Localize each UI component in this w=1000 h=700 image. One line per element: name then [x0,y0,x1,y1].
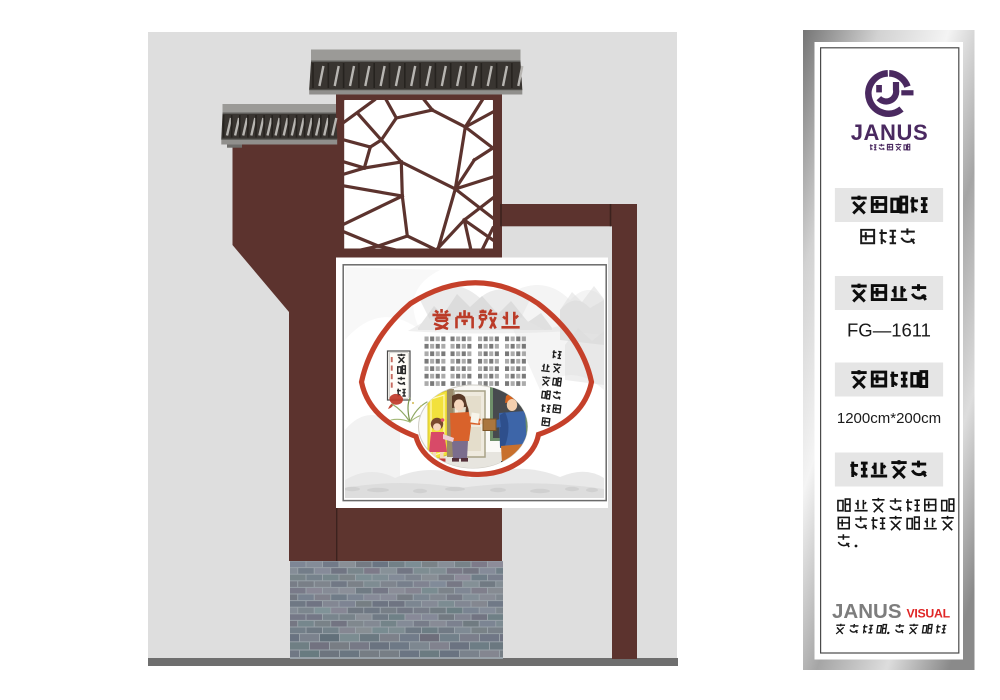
svg-text:FG—1611: FG—1611 [847,320,931,341]
svg-text:JANUS: JANUS [851,120,929,145]
svg-text:VISUAL: VISUAL [907,607,951,621]
svg-text:1200cm*200cm: 1200cm*200cm [837,410,941,427]
svg-text:JANUS: JANUS [832,600,902,623]
